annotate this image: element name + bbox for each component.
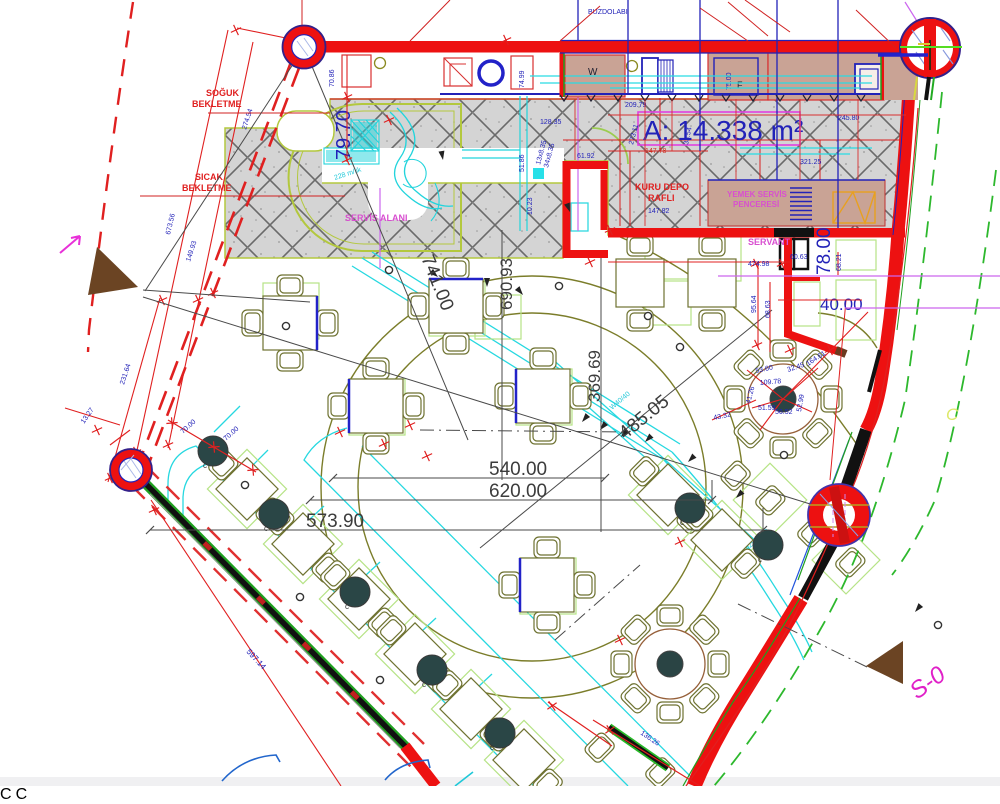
svg-text:c: c	[422, 680, 426, 689]
svg-text:573.90: 573.90	[306, 511, 364, 532]
svg-text:c: c	[758, 555, 762, 564]
svg-text:BEKLETME: BEKLETME	[182, 183, 232, 193]
svg-text:209.79: 209.79	[625, 102, 647, 109]
svg-text:369.69: 369.69	[585, 350, 604, 402]
svg-text:540.00: 540.00	[489, 459, 547, 480]
svg-text:78.00: 78.00	[814, 227, 835, 275]
svg-text:245.80: 245.80	[838, 115, 860, 122]
svg-text:68.63: 68.63	[765, 300, 772, 318]
svg-text:74.99: 74.99	[519, 70, 526, 88]
svg-text:c: c	[345, 602, 349, 611]
svg-text:c: c	[490, 743, 494, 752]
svg-text:70.86: 70.86	[329, 69, 336, 87]
svg-text:51.59: 51.59	[758, 405, 776, 412]
svg-text:75.00: 75.00	[726, 72, 733, 90]
svg-text:95.64: 95.64	[751, 295, 758, 313]
svg-text:A: 14.338 m²: A: 14.338 m²	[643, 115, 803, 146]
svg-text:51.86: 51.86	[519, 154, 526, 172]
svg-text:PENCERESİ: PENCERESİ	[733, 200, 779, 209]
svg-text:56.52: 56.52	[775, 409, 793, 416]
svg-text:BEKLETME: BEKLETME	[192, 99, 242, 109]
svg-text:147.78: 147.78	[645, 148, 667, 155]
svg-text:79.70: 79.70	[333, 110, 355, 160]
svg-text:KURU DEPO: KURU DEPO	[635, 182, 689, 192]
svg-text:C: C	[946, 405, 959, 424]
svg-text:147.82: 147.82	[648, 208, 670, 215]
svg-text:40.00: 40.00	[820, 295, 863, 314]
svg-text:BUZDOLABI: BUZDOLABI	[588, 9, 628, 16]
svg-text:321.25: 321.25	[800, 159, 822, 166]
svg-text:RAFLI: RAFLI	[648, 193, 675, 203]
svg-text:c: c	[680, 518, 684, 527]
svg-text:61.92: 61.92	[577, 153, 595, 160]
svg-text:c: c	[203, 461, 207, 470]
svg-text:SOĞUK: SOĞUK	[206, 87, 240, 98]
svg-text:620.00: 620.00	[489, 481, 547, 502]
svg-text:c: c	[264, 524, 268, 533]
svg-text:YEMEK SERVİS: YEMEK SERVİS	[727, 190, 788, 199]
svg-text:68.21: 68.21	[836, 253, 843, 271]
svg-text:128.35: 128.35	[540, 119, 562, 126]
svg-text:60.63: 60.63	[790, 254, 808, 261]
svg-text:SERVANT: SERVANT	[748, 237, 791, 247]
svg-text:690.93: 690.93	[497, 258, 516, 310]
svg-text:10.23: 10.23	[527, 197, 534, 215]
svg-text:474.98: 474.98	[748, 261, 770, 268]
